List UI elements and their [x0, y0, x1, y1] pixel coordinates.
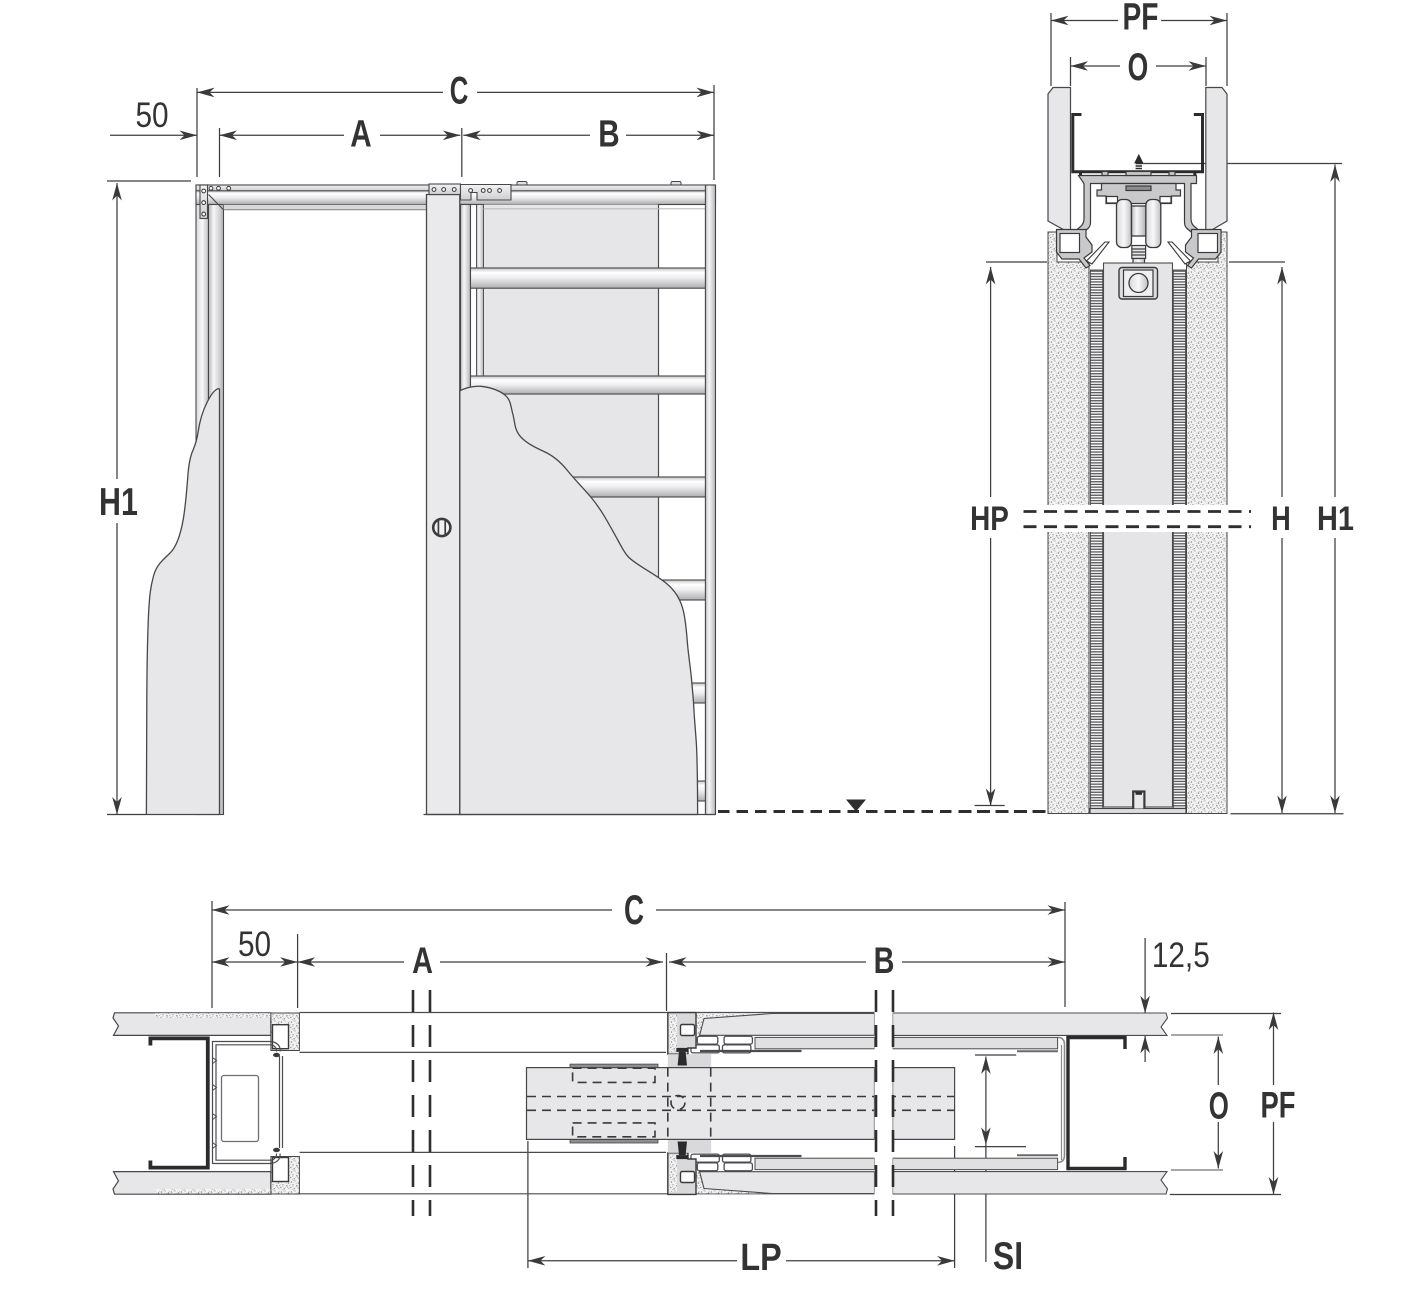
svg-text:PF: PF	[1123, 0, 1159, 39]
svg-text:SI: SI	[993, 1234, 1023, 1278]
svg-text:A: A	[412, 941, 433, 982]
svg-text:HP: HP	[970, 499, 1009, 537]
svg-text:B: B	[874, 941, 895, 982]
svg-text:H1: H1	[99, 480, 138, 523]
svg-text:H1: H1	[1317, 499, 1354, 538]
svg-text:H: H	[1271, 499, 1291, 538]
svg-text:C: C	[624, 886, 644, 933]
svg-text:LP: LP	[740, 1237, 781, 1279]
svg-text:50: 50	[135, 96, 168, 135]
svg-text:O: O	[1128, 46, 1149, 89]
svg-text:C: C	[450, 69, 469, 113]
svg-text:12,5: 12,5	[1152, 936, 1210, 975]
svg-text:A: A	[350, 113, 371, 155]
svg-text:50: 50	[238, 925, 271, 964]
svg-text:B: B	[598, 113, 619, 155]
svg-text:O: O	[1209, 1085, 1229, 1127]
svg-text:PF: PF	[1261, 1085, 1296, 1126]
